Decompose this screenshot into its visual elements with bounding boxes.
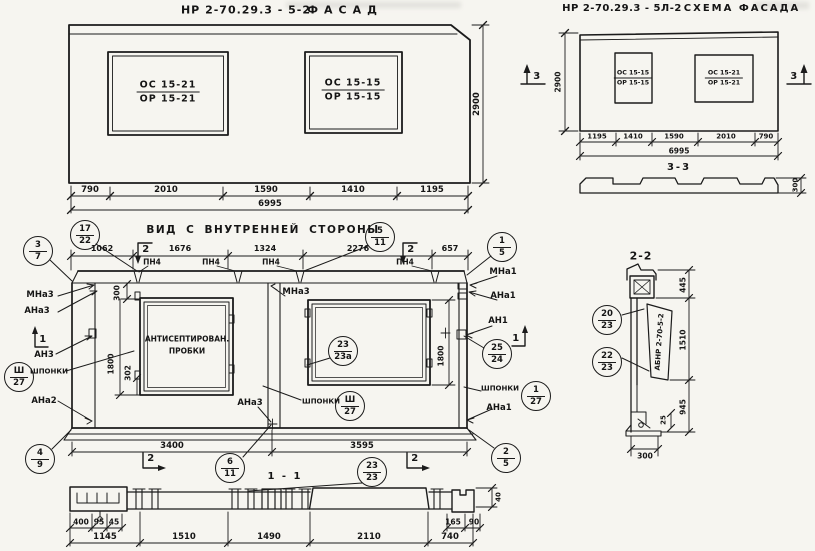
label-ana3: АНа3	[24, 307, 49, 316]
callout-5-11: 511	[365, 222, 395, 252]
section-2-2-title: 2-2	[630, 251, 653, 262]
facade-title-name: ФАСАД	[307, 5, 383, 16]
pn4-label: ПН4	[202, 258, 220, 266]
sec22-dim-1510: 1510	[679, 330, 687, 351]
inner-panel-edges	[72, 283, 467, 428]
pn4-label: ПН4	[396, 258, 414, 266]
sec11-dim: 95	[94, 518, 104, 526]
facade-dim: 1410	[341, 186, 365, 195]
facade-dim: 1590	[254, 186, 278, 195]
label-ana2: АНа2	[31, 397, 56, 406]
facade-dim-total: 6995	[258, 200, 282, 209]
label-shponki-right: ШПОНКИ	[481, 386, 519, 393]
inner-window-right	[308, 300, 430, 385]
schema-section-profile	[580, 178, 778, 193]
sec22-dim-445: 445	[679, 277, 687, 293]
sec11-dim: 90	[469, 518, 479, 526]
facade-dim: 790	[81, 186, 99, 195]
schema-dim: 790	[759, 134, 774, 141]
label-mna3: МНа3	[26, 291, 53, 300]
sec11-left-block	[70, 487, 127, 511]
facade-dim-height: 2900	[473, 92, 482, 116]
label-ana1: АНа1	[490, 292, 515, 301]
schema-dim: 1410	[623, 134, 642, 141]
schema-dim-height: 2900	[554, 72, 562, 93]
inner-top-dim: 657	[442, 245, 459, 253]
pn4-label: ПН4	[143, 258, 161, 266]
sec11-dim: 45	[109, 518, 119, 526]
label-shponki-left: ШПОНКИ	[30, 369, 68, 376]
section-marker-3-right-num: 3	[790, 72, 797, 82]
window-note-line1: АНТИСЕПТИРОВАН.	[145, 335, 229, 343]
label-ana1-bottom: АНа1	[486, 404, 511, 413]
callout-3-7: 37	[23, 236, 53, 266]
facade-window-left-mark: ОС 15-21 ОР 15-21	[137, 80, 200, 105]
sec22-dim-25: 25	[661, 415, 668, 425]
sec11-dim: 2110	[357, 533, 381, 542]
pn4-label: ПН4	[262, 258, 280, 266]
section-flag-2: 2	[407, 245, 414, 255]
section-flag-1: 1	[39, 335, 46, 345]
vdim-302: 302	[124, 365, 132, 381]
schema-window-left-mark: ОС 15-15 ОР 15-15	[614, 70, 652, 87]
facade-title-code: НР 2-70.29.3 - 5-2	[181, 5, 311, 16]
sec11-dim: 165	[445, 518, 461, 526]
inner-bottom-dim: 3595	[350, 442, 374, 451]
schema-section-label: 3-3	[667, 163, 691, 173]
callout-25-24: 2524	[482, 339, 512, 369]
sec11-right-block	[452, 490, 474, 512]
callout-17-22: 1722	[70, 220, 100, 250]
inner-bottom-dim: 3400	[160, 442, 184, 451]
sec22-dim-300: 300	[637, 452, 653, 460]
inner-view-title: ВИД С ВНУТРЕННЕЙ СТОРОНЫ	[146, 225, 379, 236]
label-an1: АН1	[488, 317, 508, 326]
callout-sh-27-mid: Ш27	[335, 391, 365, 421]
section-flag-2: 2	[411, 454, 418, 464]
callout-22-23: 2223	[592, 347, 622, 377]
sec11-dim: 1145	[93, 533, 117, 542]
facade-window-right-mark: ОС 15-15 ОР 15-15	[322, 78, 385, 103]
schema-dim-total: 6995	[669, 147, 690, 155]
label-ana3-bottom: АНа3	[237, 399, 262, 408]
sec11-dim: 400	[73, 518, 89, 526]
schema-dim: 1590	[664, 134, 683, 141]
callout-6-11: 611	[215, 453, 245, 483]
callout-sh-27-left: Ш27	[4, 362, 34, 392]
inner-top-dim: 2276	[347, 245, 369, 253]
vdim-1800-right: 1800	[437, 346, 445, 367]
window-note-line2: ПРОБКИ	[169, 347, 205, 355]
inner-top-dim: 1676	[169, 245, 191, 253]
callout-20-23: 2023	[592, 305, 622, 335]
schema-title-name: СХЕМА ФАСАДА	[684, 4, 800, 14]
label-mna3-mid: МНа3	[282, 288, 309, 297]
schema-window-right-mark: ОС 15-21 ОР 15-21	[705, 70, 743, 87]
callout-1-27: 127	[521, 381, 551, 411]
callout-4-9: 49	[25, 444, 55, 474]
vdim-300: 300	[113, 285, 121, 301]
schema-dim: 1195	[587, 134, 606, 141]
facade-dim: 2010	[154, 186, 178, 195]
schema-panel	[580, 32, 778, 131]
facade-panel	[69, 25, 470, 183]
label-an3: АН3	[34, 351, 54, 360]
sec22-dim-945: 945	[679, 399, 687, 415]
vdim-1800-left: 1800	[107, 354, 115, 375]
sec11-dim: 1510	[172, 533, 196, 542]
inner-top-dim: 1324	[254, 245, 276, 253]
sec11-dim-40: 40	[496, 492, 503, 502]
section-flag-2: 2	[142, 245, 149, 255]
blueprint-canvas: НР 2-70.29.3 - 5-2 ФАСАД ОС 15-21 ОР 15-…	[0, 0, 815, 551]
drawing-linework	[0, 0, 815, 551]
section-1-1-drawing	[67, 485, 498, 547]
schema-title-code: НР 2-70.29.3 - 5Л-2	[562, 4, 682, 14]
sec11-slab	[310, 488, 430, 509]
section-flag-2: 2	[147, 454, 154, 464]
schema-dim: 2010	[716, 134, 735, 141]
section-marker-3-left-num: 3	[533, 72, 540, 82]
callout-23-23: 2323	[357, 457, 387, 487]
callout-1-5: 15	[487, 232, 517, 262]
callout-2-5: 25	[491, 443, 521, 473]
section-1-1-label: 1 - 1	[267, 472, 302, 482]
sec11-dim: 1490	[257, 533, 281, 542]
label-mna1: МНа1	[489, 268, 516, 277]
schema-profile-height: 300	[793, 178, 800, 193]
facade-dim: 1195	[420, 186, 444, 195]
sec11-dim: 740	[441, 533, 459, 542]
callout-23-23a: 2323а	[328, 336, 358, 366]
section-flag-1: 1	[512, 334, 519, 344]
